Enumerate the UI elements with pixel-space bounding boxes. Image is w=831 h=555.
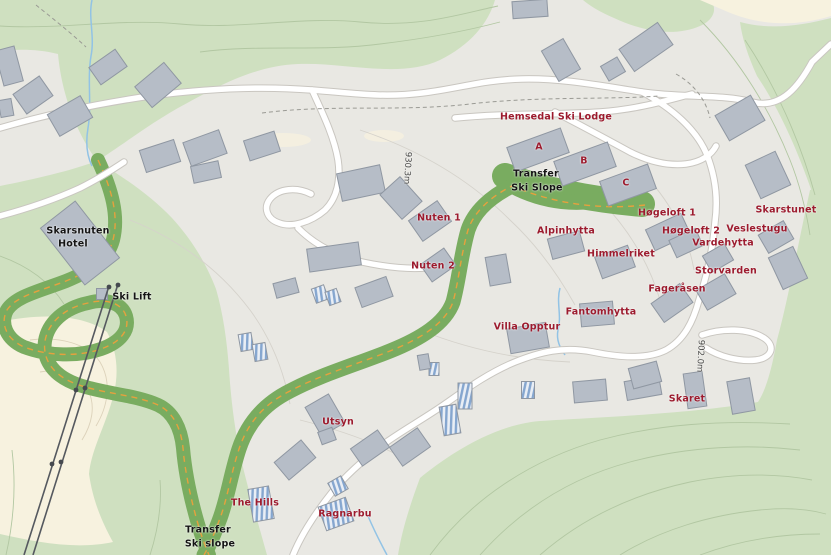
building xyxy=(485,254,511,286)
building-striped xyxy=(458,383,472,409)
lift-pylon-dot xyxy=(107,285,112,290)
building xyxy=(580,301,615,327)
building-striped xyxy=(238,333,254,352)
lift-pylon-dot xyxy=(83,386,88,391)
building xyxy=(417,354,430,371)
building-striped xyxy=(522,382,535,399)
lift-pylon-dot xyxy=(116,283,121,288)
lift-pylon-dot xyxy=(50,462,55,467)
building xyxy=(0,99,14,118)
building xyxy=(573,379,608,403)
lift-pylon-dot xyxy=(59,460,64,465)
map-canvas xyxy=(0,0,831,555)
building-striped xyxy=(252,343,268,362)
lift-pylon-dot xyxy=(74,388,79,393)
building xyxy=(512,0,548,19)
ski-area-map[interactable]: Hemsedal Ski LodgeABCTransferSki SlopeNu… xyxy=(0,0,831,555)
